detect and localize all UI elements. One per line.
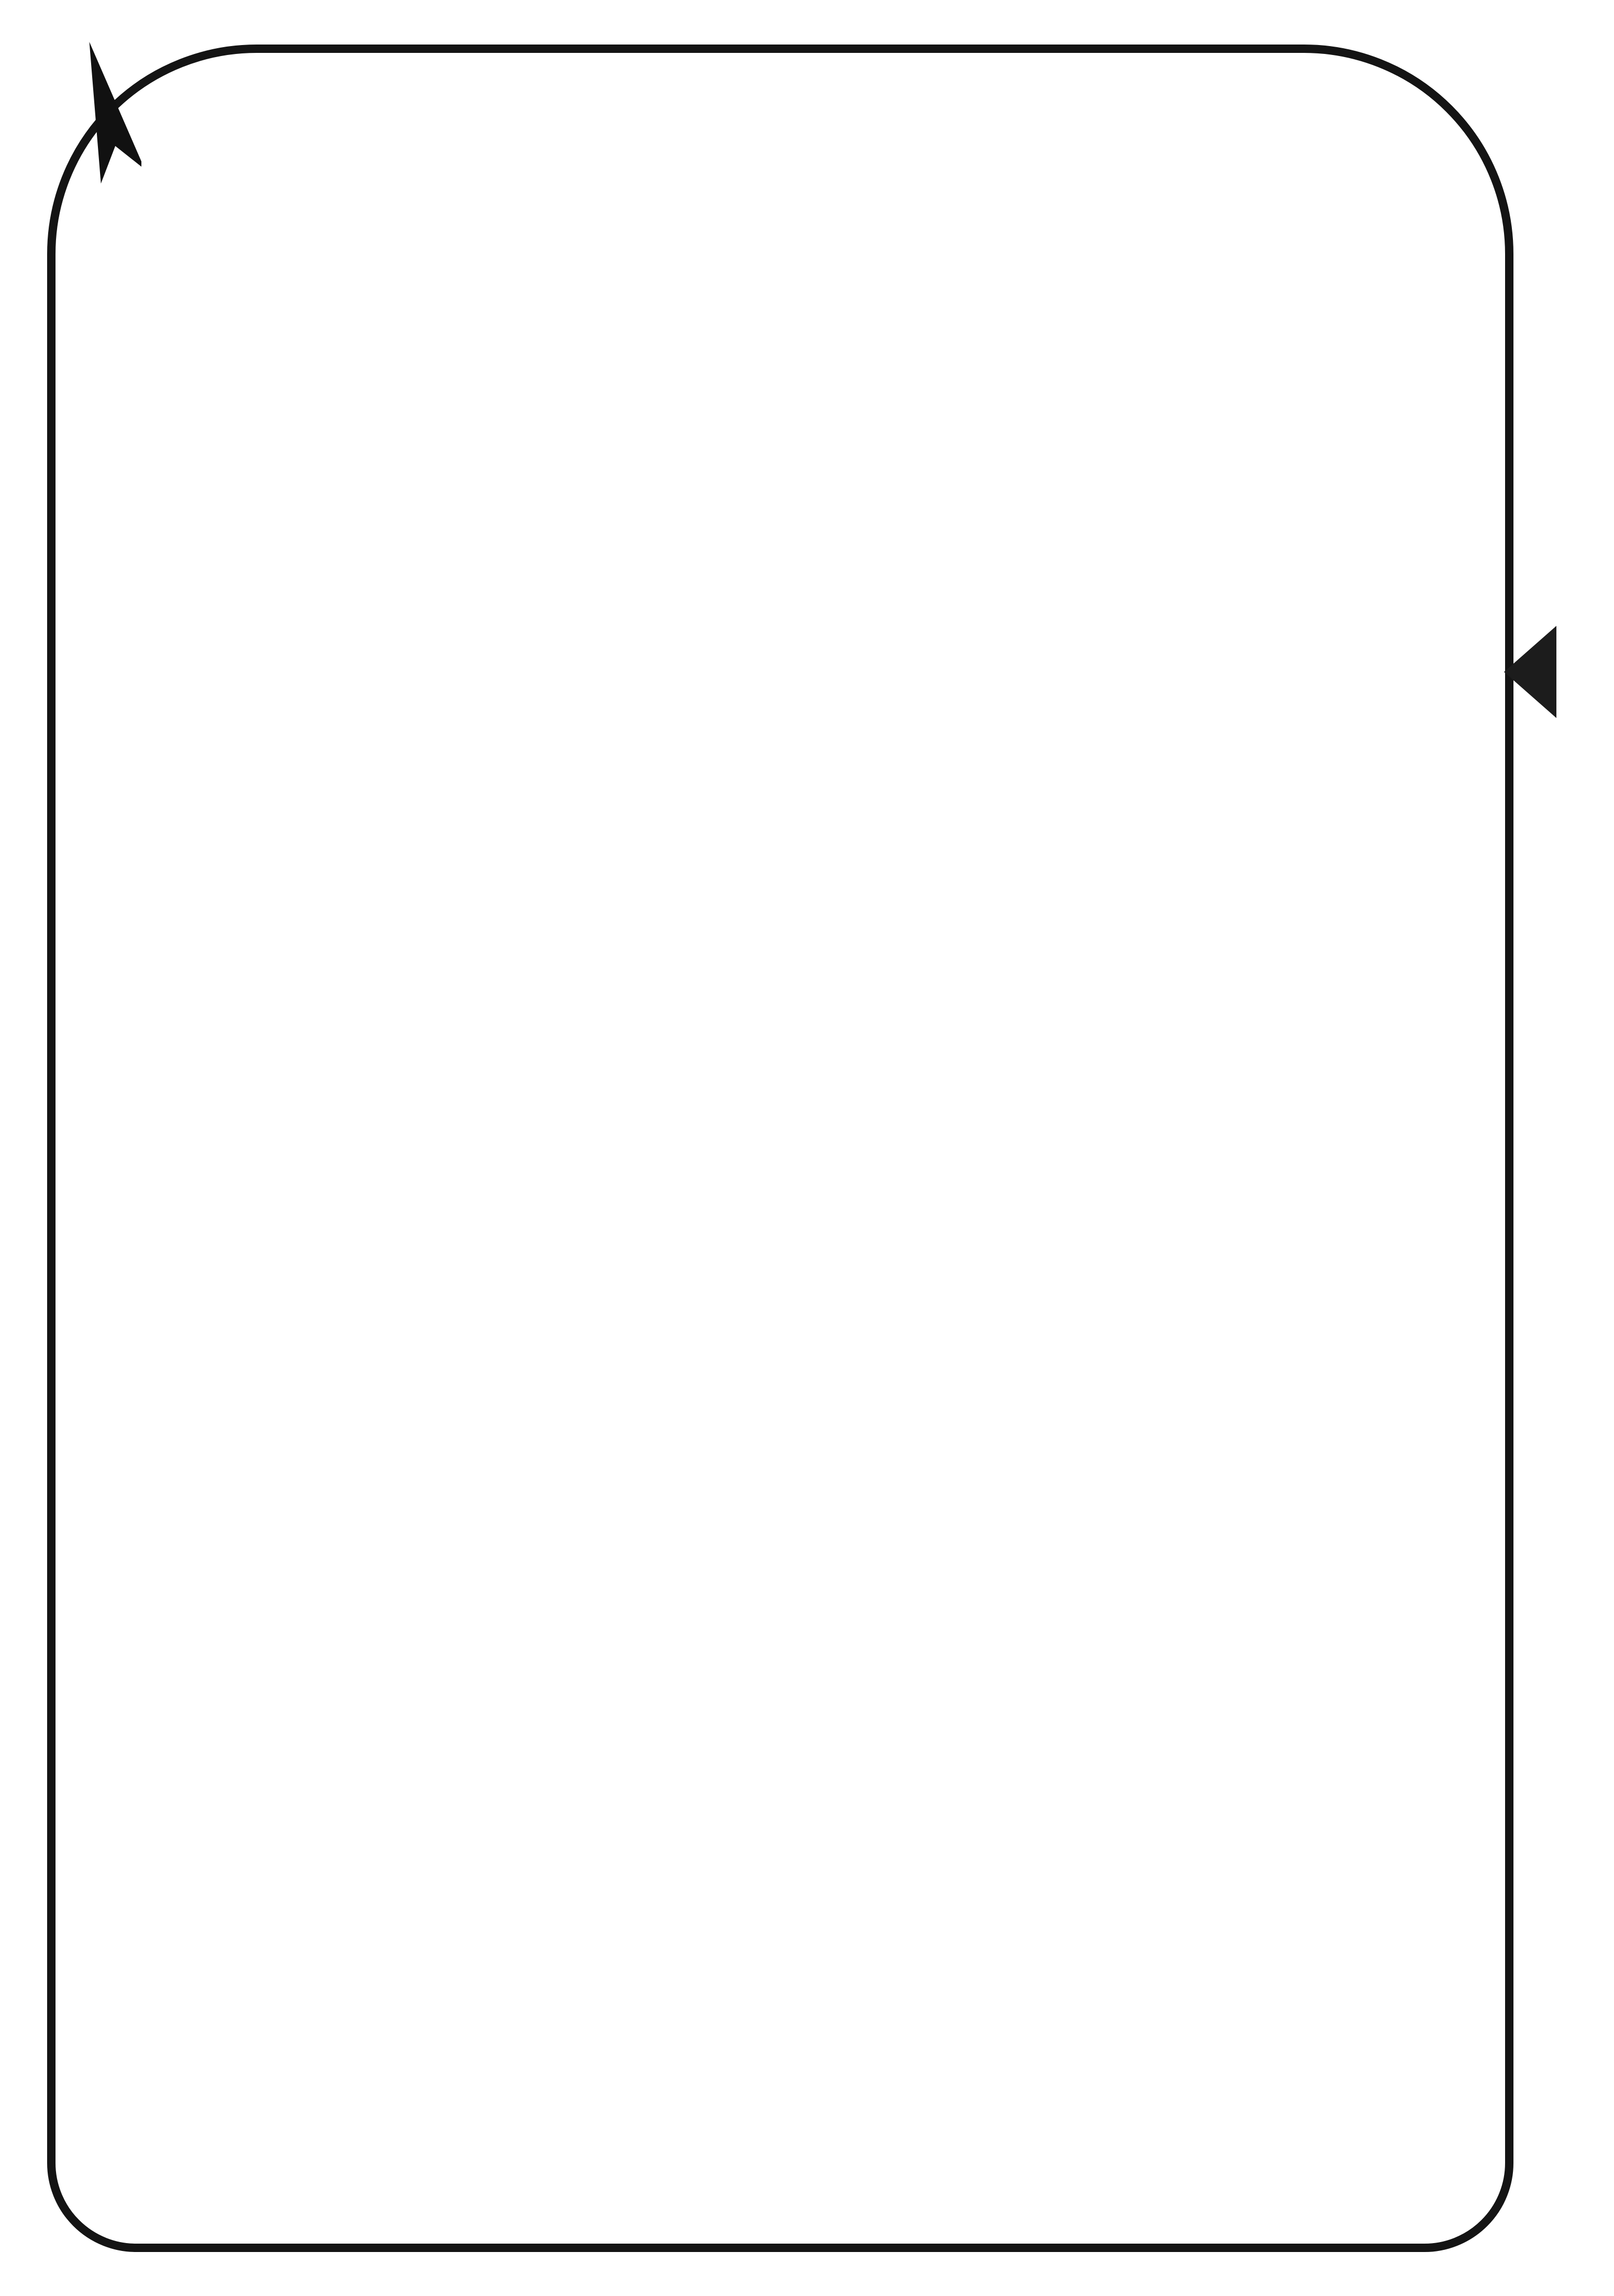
north-marker [79, 37, 141, 197]
building-outline [47, 45, 1513, 2252]
entrance-marker [1504, 626, 1561, 718]
entrance-arrow-icon [1504, 626, 1556, 718]
north-arrow-icon [79, 40, 141, 197]
plan-geometry [47, 45, 1513, 2252]
floor-plan [0, 0, 1614, 2296]
